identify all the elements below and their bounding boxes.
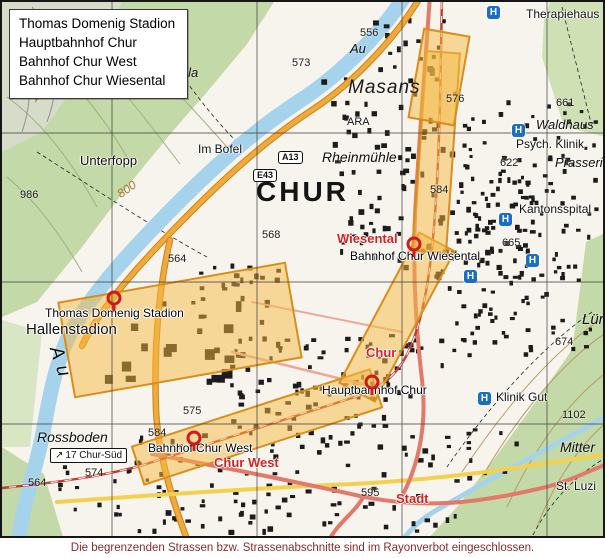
map-label-chur-west: Chur West (214, 456, 279, 469)
map-label-564: 564 (168, 254, 186, 265)
hospital-icon: H (478, 392, 491, 405)
station-pin-hauptbahnhof-chur (363, 374, 381, 403)
hospital-icon: H (499, 213, 512, 226)
map-label-psych-klinik: Psych. Klinik (516, 138, 584, 150)
exit-sign-label: 17 Chur-Süd (65, 450, 122, 461)
legend-item: Thomas Domenig Stadion (19, 15, 175, 34)
pin-icon (185, 430, 203, 454)
hospital-icon: H (526, 254, 539, 267)
pin-icon (105, 290, 123, 314)
station-pin-bahnhof-chur-west (185, 430, 203, 459)
map-label-rossboden: Rossboden (37, 430, 108, 444)
map-label-masans: Masans (348, 78, 421, 97)
map-label-665: 665 (502, 238, 520, 249)
map-label-556: 556 (360, 28, 378, 39)
map-label-stadt: Stadt (396, 492, 429, 505)
map-label-575: 575 (183, 406, 201, 417)
map-label-568: 568 (262, 230, 280, 241)
map-label-au: Au (350, 42, 366, 55)
hospital-icon: H (487, 6, 500, 19)
station-pin-bahnhof-chur-wiesental (405, 236, 423, 265)
map-label-st-luzi: St. Luzi (556, 480, 596, 492)
map-canvas: CHURMasansRheinmühleTherapiehausWaldhaus… (0, 0, 605, 538)
map-label-576: 576 (446, 94, 464, 105)
map-label-986: 986 (20, 190, 38, 201)
station-pin-thomas-domenig-stadion (105, 290, 123, 319)
map-label-therapiehaus: Therapiehaus (526, 8, 599, 20)
map-label-574: 574 (85, 468, 103, 479)
legend-box: Thomas Domenig Stadion Hauptbahnhof Chur… (9, 9, 188, 99)
map-label-800: 800 (115, 179, 138, 200)
legend-item: Bahnhof Chur West (19, 53, 175, 72)
map-label-hallenstadion: Hallenstadion (26, 322, 117, 337)
map-label-kantonsspital: Kantonsspital (519, 203, 591, 215)
route-shield-a13: A13 (278, 151, 303, 164)
map-label-674: 674 (555, 337, 573, 348)
map-label-chur: Chur (366, 346, 396, 359)
pin-icon (363, 374, 381, 398)
pin-icon (405, 236, 423, 260)
rayonverbot-caption: Die begrenzenden Strassen bzw. Strassena… (71, 542, 534, 554)
legend-item: Bahnhof Chur Wiesental (19, 72, 175, 91)
map-label-573: 573 (292, 58, 310, 69)
map-label-l-rl: Lürl (582, 312, 605, 327)
route-shield-e43: E43 (253, 169, 277, 182)
hospital-icon: H (512, 124, 525, 137)
map-label-rheinm-hle: Rheinmühle (322, 150, 397, 164)
map-label-mitter: Mitter (560, 440, 595, 454)
map-label-ara: ARA (347, 117, 370, 128)
map-label-661: 661 (556, 98, 574, 109)
map-label-595: 595 (361, 488, 379, 499)
map-label-chur: CHUR (256, 178, 349, 206)
hospital-icon: H (464, 270, 477, 283)
map-label-wiesental: Wiesental (337, 232, 398, 245)
legend-item: Hauptbahnhof Chur (19, 34, 175, 53)
map-label-au: Au (46, 344, 76, 385)
exit-arrow-icon: ↗ (55, 450, 63, 461)
map-label-unterfopp: Unterfopp (80, 154, 137, 167)
map-label-584: 584 (430, 185, 448, 196)
map-label-waldhaus: Waldhaus (536, 118, 594, 131)
map-label-584: 584 (148, 428, 166, 439)
map-label-1102: 1102 (562, 410, 586, 421)
caption-bar: Die begrenzenden Strassen bzw. Strassena… (0, 538, 605, 558)
map-label-564: 564 (28, 478, 46, 489)
map-label-622: 622 (500, 158, 518, 169)
motorway-exit-sign: ↗17 Chur-Süd (50, 448, 127, 463)
map-label-im-bofel: Im Bofel (198, 143, 242, 155)
map-label-prasseri: Prasseri (555, 156, 603, 169)
map-label-klinik-gut: Klinik Gut (496, 391, 547, 403)
